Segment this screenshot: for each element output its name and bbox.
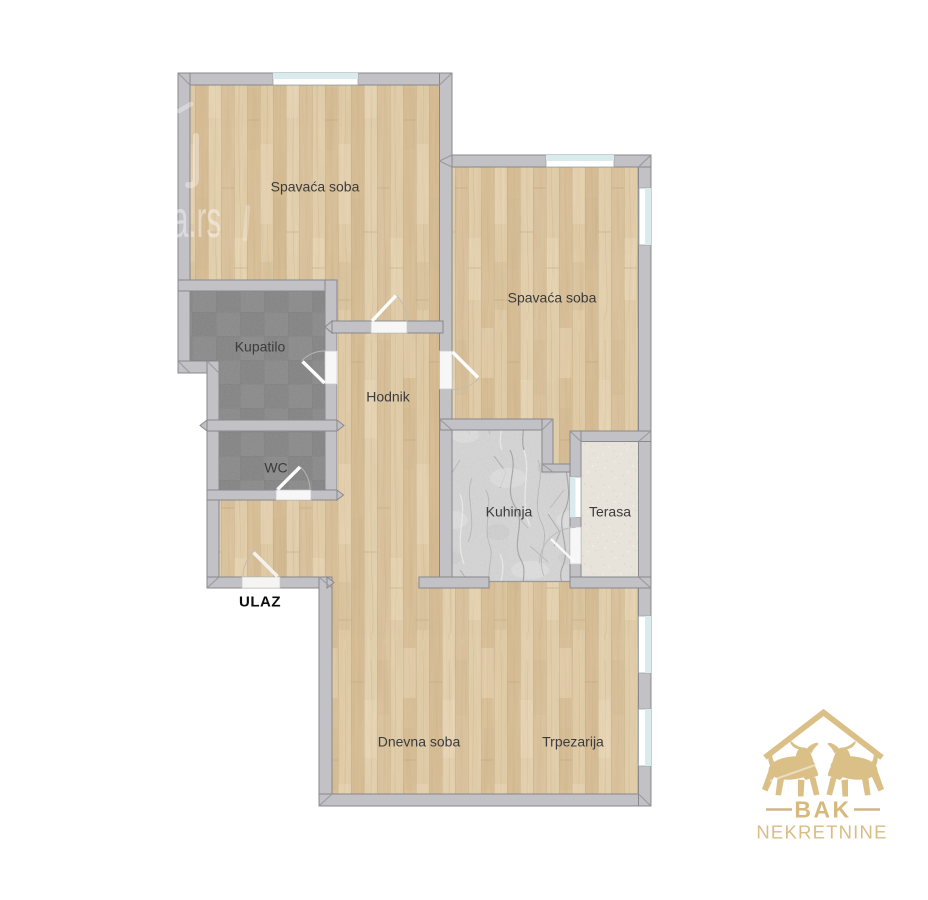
- svg-text:Kupatilo: Kupatilo: [235, 339, 286, 355]
- svg-text:BAK: BAK: [794, 797, 851, 823]
- svg-text:Hodnik: Hodnik: [366, 389, 411, 405]
- svg-text:a.rs: a.rs: [172, 190, 221, 248]
- svg-text:WC: WC: [264, 460, 287, 476]
- svg-text:Dnevna soba: Dnevna soba: [378, 734, 461, 750]
- svg-text:ULAZ: ULAZ: [239, 594, 281, 611]
- svg-text:NEKRETNINE: NEKRETNINE: [756, 822, 887, 843]
- svg-text:Spavaća soba: Spavaća soba: [271, 179, 360, 195]
- svg-text:Trpezarija: Trpezarija: [542, 734, 604, 750]
- svg-text:Spavaća soba: Spavaća soba: [508, 290, 597, 306]
- svg-text:Kuhinja: Kuhinja: [486, 504, 533, 520]
- svg-text:Terasa: Terasa: [589, 504, 631, 520]
